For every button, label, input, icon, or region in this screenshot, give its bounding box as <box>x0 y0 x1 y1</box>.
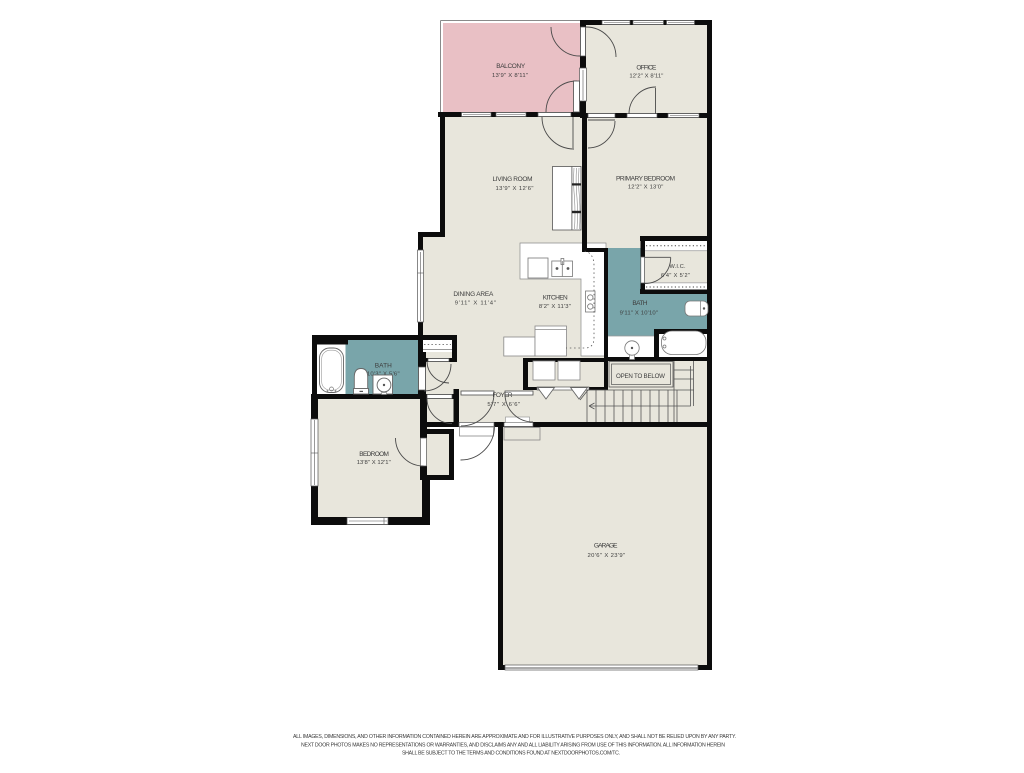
svg-text:13'9" X 12'6": 13'9" X 12'6" <box>496 186 534 192</box>
svg-text:8'2" X 11'3": 8'2" X 11'3" <box>539 304 571 310</box>
svg-text:20'6" X 23'9": 20'6" X 23'9" <box>588 553 626 559</box>
svg-text:12'2" X 8'11": 12'2" X 8'11" <box>629 74 663 80</box>
svg-text:W.I.C.: W.I.C. <box>670 264 686 270</box>
svg-text:13'8" X 12'1": 13'8" X 12'1" <box>357 460 391 466</box>
svg-text:6'4" X 5'2": 6'4" X 5'2" <box>661 273 690 279</box>
svg-text:LIVING ROOM: LIVING ROOM <box>493 176 533 183</box>
svg-text:ALL IMAGES, DIMENSIONS, AND OT: ALL IMAGES, DIMENSIONS, AND OTHER INFORM… <box>293 734 736 740</box>
svg-text:9'11" X 11'4": 9'11" X 11'4" <box>455 300 496 306</box>
svg-text:BALCONY: BALCONY <box>496 63 526 70</box>
svg-text:NEXT DOOR PHOTOS MAKES NO REPR: NEXT DOOR PHOTOS MAKES NO REPRESENTATION… <box>301 742 725 748</box>
svg-text:DINING AREA: DINING AREA <box>453 291 494 298</box>
svg-text:SHALL BE SUBJECT TO THE TERMS: SHALL BE SUBJECT TO THE TERMS AND CONDIT… <box>402 751 620 757</box>
svg-text:BEDROOM: BEDROOM <box>359 451 389 458</box>
svg-text:5'7" X 6'6": 5'7" X 6'6" <box>487 402 520 408</box>
svg-text:FOYER: FOYER <box>493 392 513 399</box>
svg-text:PRIMARY BEDROOM: PRIMARY BEDROOM <box>616 175 675 182</box>
svg-text:12'2" X 13'0": 12'2" X 13'0" <box>628 185 664 191</box>
svg-text:13'9" X 8'11": 13'9" X 8'11" <box>492 73 528 79</box>
svg-text:9'11" X 10'10": 9'11" X 10'10" <box>620 310 658 316</box>
svg-text:OPEN TO BELOW: OPEN TO BELOW <box>616 373 665 380</box>
svg-text:BATH: BATH <box>375 362 392 369</box>
svg-text:BATH: BATH <box>632 300 647 307</box>
svg-text:KITCHEN: KITCHEN <box>543 294 568 301</box>
svg-text:GARAGE: GARAGE <box>594 543 618 550</box>
svg-text:OFFICE: OFFICE <box>636 64 657 71</box>
